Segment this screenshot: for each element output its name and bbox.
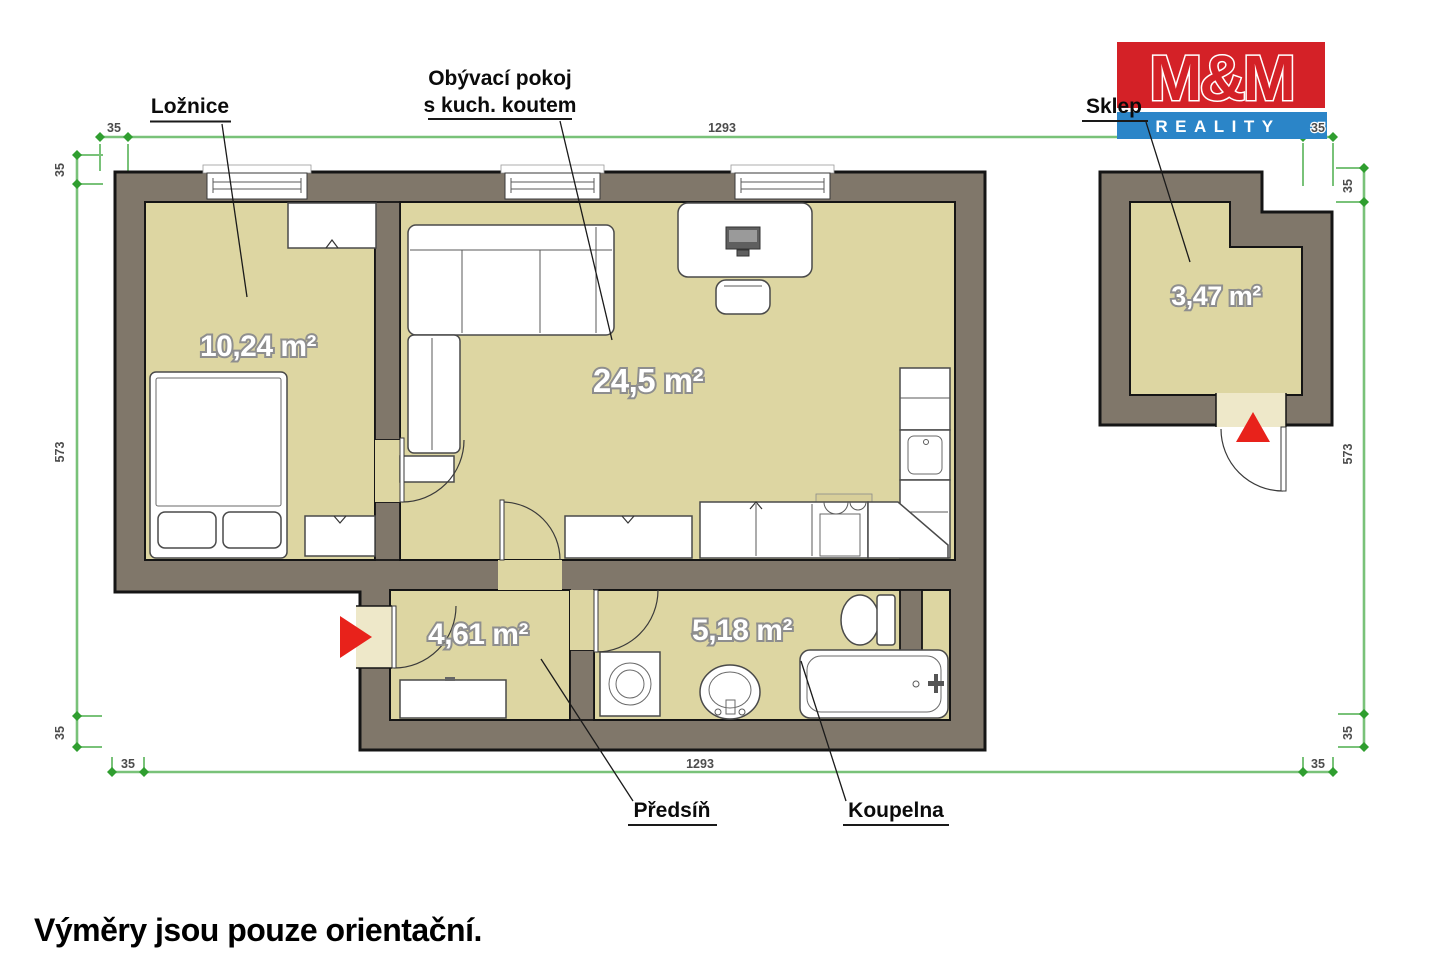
dim-left-middle: 573 — [53, 442, 67, 463]
mm-reality-logo: M&M REALITY — [1117, 42, 1327, 139]
hallway-furniture — [400, 677, 506, 718]
label-obyvaci-pokoj-line1: Obývací pokoj — [428, 67, 572, 90]
side-table — [400, 456, 454, 482]
cellar-building — [1100, 172, 1332, 491]
bedroom-living-wall-lower — [375, 502, 400, 560]
area-sklep: 3,47 m² — [1171, 281, 1261, 311]
dim-top-center: 1293 — [708, 121, 736, 135]
cabinet-knob — [445, 677, 455, 681]
area-koupelna: 5,18 m² — [692, 614, 792, 647]
main-building — [115, 165, 985, 750]
dim-bottom-right: 35 — [1311, 757, 1325, 771]
label-koupelna: Koupelna — [848, 799, 944, 822]
area-predsin: 4,61 m² — [428, 618, 528, 651]
desk-chair — [716, 280, 770, 314]
dim-right-bottom: 35 — [1341, 726, 1355, 740]
dim-right-top: 35 — [1341, 179, 1355, 193]
living-window-2 — [735, 173, 830, 199]
bathtub — [800, 650, 948, 718]
label-predsin: Předsíň — [633, 799, 710, 822]
dim-top-left: 35 — [107, 121, 121, 135]
sofa-chaise — [408, 335, 460, 453]
toilet — [841, 595, 895, 645]
bathroom-door-leaf — [594, 590, 598, 652]
windows — [203, 165, 834, 199]
bathroom-sink — [700, 665, 760, 719]
kitchen-counter — [700, 502, 868, 558]
bedroom-window — [207, 173, 307, 199]
pillow — [158, 512, 216, 548]
washing-machine — [600, 652, 660, 716]
floorplan-drawing: M&M REALITY 35 1293 35 35 1293 35 35 573… — [0, 0, 1440, 960]
living-window-1 — [505, 173, 600, 199]
floorplan-page: M&M REALITY 35 1293 35 35 1293 35 35 573… — [0, 0, 1440, 960]
kitchen-tall-unit — [900, 368, 950, 430]
area-obyvaci: 24,5 m² — [593, 362, 704, 399]
hall-cabinet — [400, 680, 506, 718]
dim-top-right: 35 — [1311, 121, 1325, 135]
entrance-door-leaf — [392, 606, 396, 668]
cellar-door-leaf — [1281, 427, 1286, 491]
label-loznice: Ložnice — [151, 95, 229, 118]
area-loznice: 10,24 m² — [200, 330, 317, 363]
logo-title: M&M — [1149, 42, 1293, 114]
dim-right-middle: 573 — [1341, 444, 1355, 465]
dim-left-bottom: 35 — [53, 726, 67, 740]
wardrobe — [288, 203, 376, 248]
cooker-hood — [816, 494, 872, 502]
living-door-leaf — [500, 500, 504, 560]
dresser — [305, 516, 375, 556]
bedroom-living-wall — [375, 202, 400, 440]
dim-bottom-center: 1293 — [686, 757, 714, 771]
dim-bottom-left: 35 — [121, 757, 135, 771]
pillow — [223, 512, 281, 548]
dim-left-top: 35 — [53, 163, 67, 177]
logo-subtitle: REALITY — [1155, 117, 1280, 136]
label-obyvaci-pokoj-line2: s kuch. koutem — [424, 94, 577, 117]
bedroom-door-leaf — [400, 438, 404, 502]
disclaimer-text: Výměry jsou pouze orientační. — [34, 912, 482, 948]
label-sklep: Sklep — [1086, 95, 1142, 118]
sofa — [408, 225, 614, 335]
toilet-partition-wall — [900, 590, 922, 655]
